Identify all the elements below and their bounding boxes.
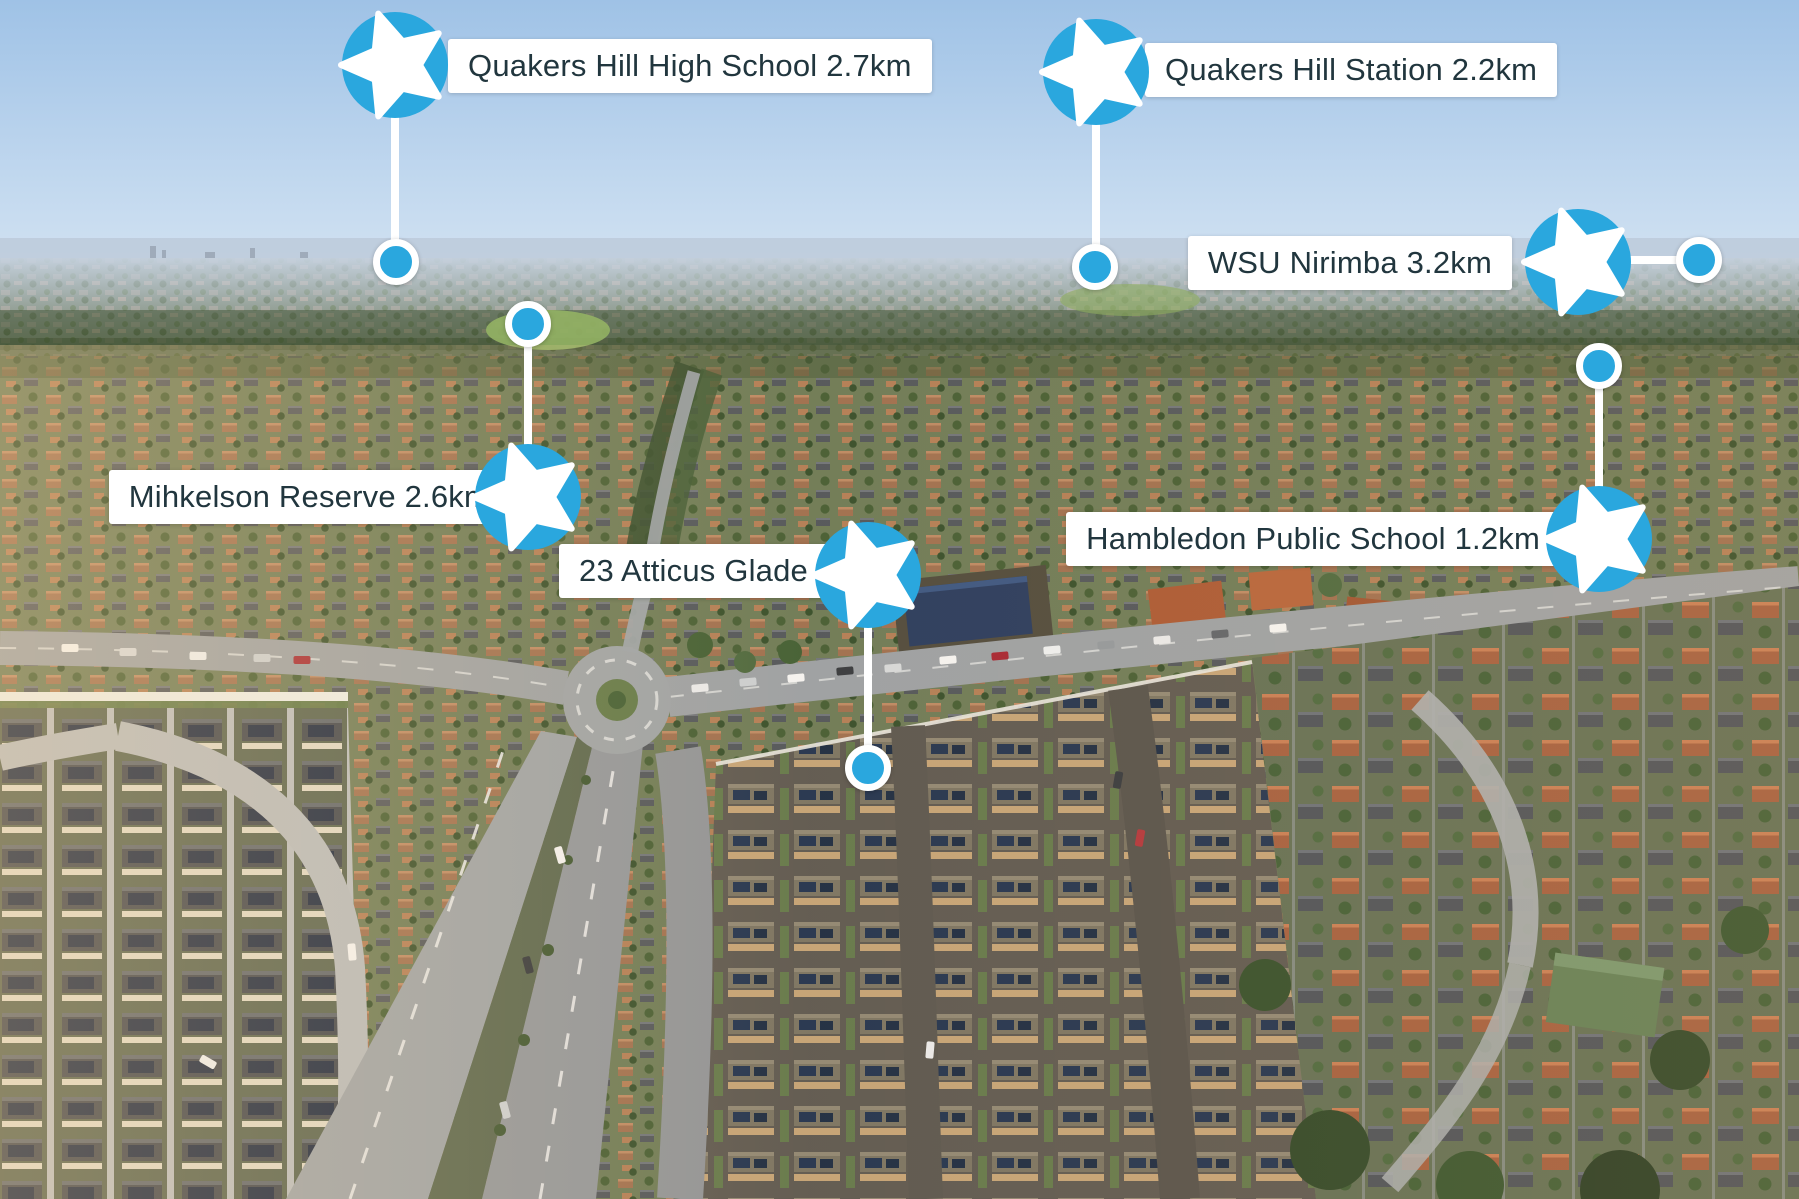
label-text: Hambledon Public School 1.2km xyxy=(1086,521,1540,556)
star-marker-icon xyxy=(808,515,928,635)
location-dot xyxy=(1576,343,1622,389)
location-dot xyxy=(1072,244,1118,290)
location-dot xyxy=(845,745,891,791)
label-atticus-glade: 23 Atticus Glade xyxy=(559,544,828,598)
marker-connector-line xyxy=(1595,380,1603,490)
star-marker-icon xyxy=(335,5,455,125)
marker-connector-line xyxy=(864,622,872,752)
label-hambledon-public-school: Hambledon Public School 1.2km xyxy=(1066,512,1560,566)
star-marker-icon xyxy=(1518,202,1638,322)
location-dot xyxy=(373,239,419,285)
location-dot xyxy=(1676,237,1722,283)
star-marker-icon xyxy=(1539,479,1659,599)
label-text: Quakers Hill High School 2.7km xyxy=(468,48,912,83)
aerial-property-photo: Quakers Hill High School 2.7km Quakers H… xyxy=(0,0,1799,1199)
star-marker-icon xyxy=(468,437,588,557)
label-text: Mihkelson Reserve 2.6km xyxy=(129,479,490,514)
marker-connector-line xyxy=(1092,118,1100,248)
label-quakers-hill-high-school: Quakers Hill High School 2.7km xyxy=(448,39,932,93)
label-text: 23 Atticus Glade xyxy=(579,553,808,588)
marker-connector-line xyxy=(391,112,399,246)
label-text: Quakers Hill Station 2.2km xyxy=(1165,52,1537,87)
label-quakers-hill-station: Quakers Hill Station 2.2km xyxy=(1145,43,1557,97)
location-dot xyxy=(505,301,551,347)
label-wsu-nirimba: WSU Nirimba 3.2km xyxy=(1188,236,1512,290)
marker-connector-line xyxy=(524,340,532,450)
label-text: WSU Nirimba 3.2km xyxy=(1208,245,1492,280)
label-mihkelson-reserve: Mihkelson Reserve 2.6km xyxy=(109,470,510,524)
star-marker-icon xyxy=(1036,12,1156,132)
